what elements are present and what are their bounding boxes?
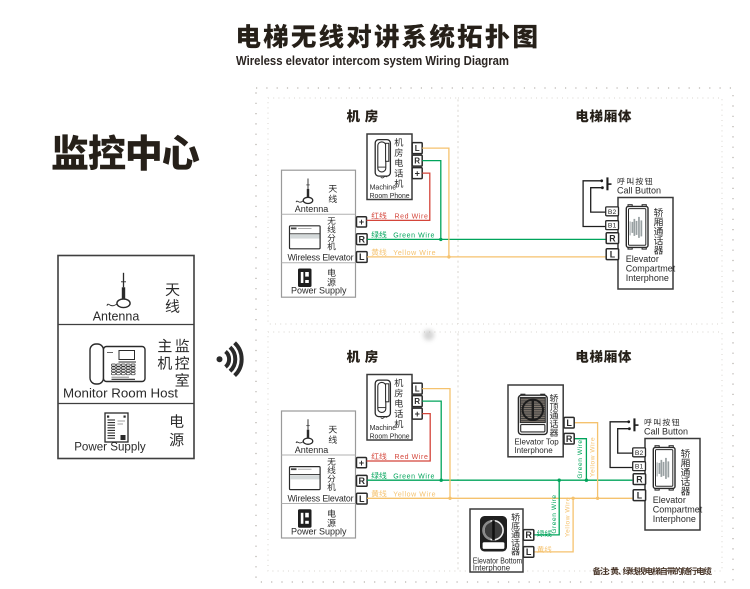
svg-text:L: L [610,249,616,259]
svg-text:Wireless elevator intercom sys: Wireless elevator intercom system Wiring… [236,53,509,68]
svg-text:R: R [525,530,532,540]
svg-text:R: R [414,156,420,165]
svg-text:R: R [566,434,573,444]
svg-text:R: R [414,397,420,406]
svg-text:+: + [359,458,364,468]
svg-text:Interphone: Interphone [514,446,553,455]
svg-text:Red Wire: Red Wire [395,214,429,221]
svg-text:Interphone: Interphone [653,514,696,524]
svg-text:Green Wire: Green Wire [393,233,435,240]
svg-text:B2: B2 [608,209,617,216]
svg-text:Red Wire: Red Wire [395,454,429,461]
svg-text:B1: B1 [608,223,617,230]
svg-text:Call Button: Call Button [644,427,688,437]
svg-text:R: R [636,474,643,484]
svg-text:L: L [415,384,420,393]
svg-text:Interphone: Interphone [473,564,510,573]
svg-text:Yellow Wire: Yellow Wire [393,250,436,257]
svg-text:B2: B2 [635,450,644,457]
svg-text:L: L [359,252,365,262]
svg-text:L: L [637,490,643,500]
svg-text:Wireless Elevator: Wireless Elevator [288,253,354,263]
svg-text:L: L [566,418,572,428]
svg-text:Green Wire: Green Wire [577,439,584,478]
svg-text:Compartmet: Compartmet [626,264,676,274]
svg-text:Antenna: Antenna [295,445,329,455]
svg-text:+: + [415,409,420,419]
svg-text:R: R [359,476,366,486]
svg-text:Green Wire: Green Wire [393,473,435,480]
svg-text:B1: B1 [635,464,644,471]
svg-text:Power Supply: Power Supply [291,286,347,296]
svg-text:Compartmet: Compartmet [653,505,703,515]
svg-text:+: + [359,217,364,227]
svg-text:Green Wire: Green Wire [551,494,558,533]
svg-text:L: L [526,547,532,557]
svg-text:Yellow Wire: Yellow Wire [393,492,436,499]
svg-text:Interphone: Interphone [626,273,669,283]
svg-text:Power Supply: Power Supply [74,440,146,454]
svg-text:Call Button: Call Button [617,186,661,196]
svg-text:R: R [609,233,616,243]
svg-text:Yellow Wire: Yellow Wire [564,497,571,537]
svg-text:Elevator: Elevator [653,495,686,505]
svg-text:Yellow Wire: Yellow Wire [589,437,596,477]
svg-text:Power Supply: Power Supply [291,527,347,537]
svg-text:Antenna: Antenna [93,310,140,324]
svg-text:Room Phone: Room Phone [370,191,410,200]
svg-text:Monitor Room Host: Monitor Room Host [63,387,179,401]
svg-text:Wireless Elevator: Wireless Elevator [288,493,354,503]
svg-text:L: L [415,144,420,153]
svg-text:Antenna: Antenna [295,204,329,214]
svg-text:Room Phone: Room Phone [370,431,410,440]
svg-text:Elevator: Elevator [626,254,659,264]
svg-text:L: L [359,494,365,504]
svg-text:R: R [359,234,366,244]
svg-text:+: + [415,168,420,178]
